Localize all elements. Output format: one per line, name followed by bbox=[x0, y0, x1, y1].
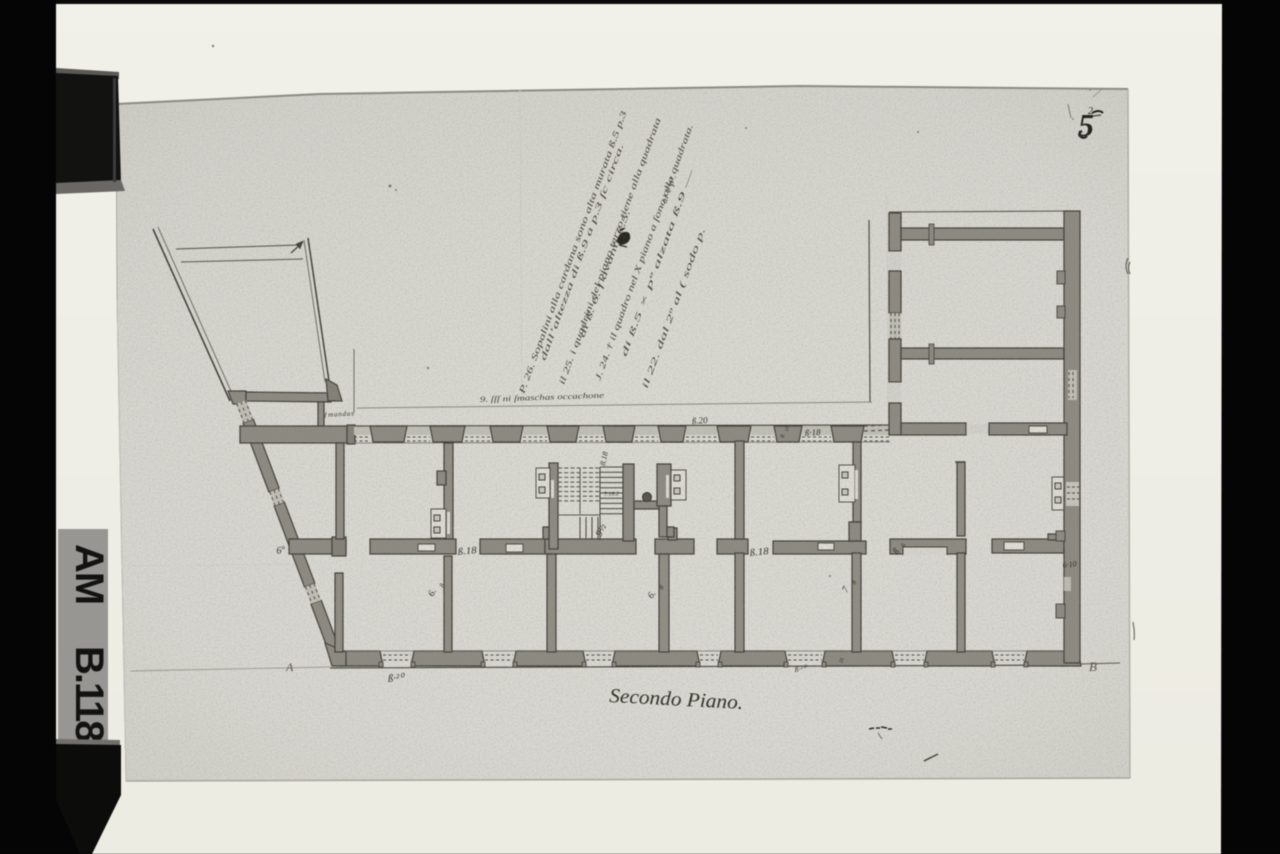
svg-text:B.118: B.118 bbox=[67, 646, 111, 742]
svg-text:AM: AM bbox=[67, 544, 111, 604]
